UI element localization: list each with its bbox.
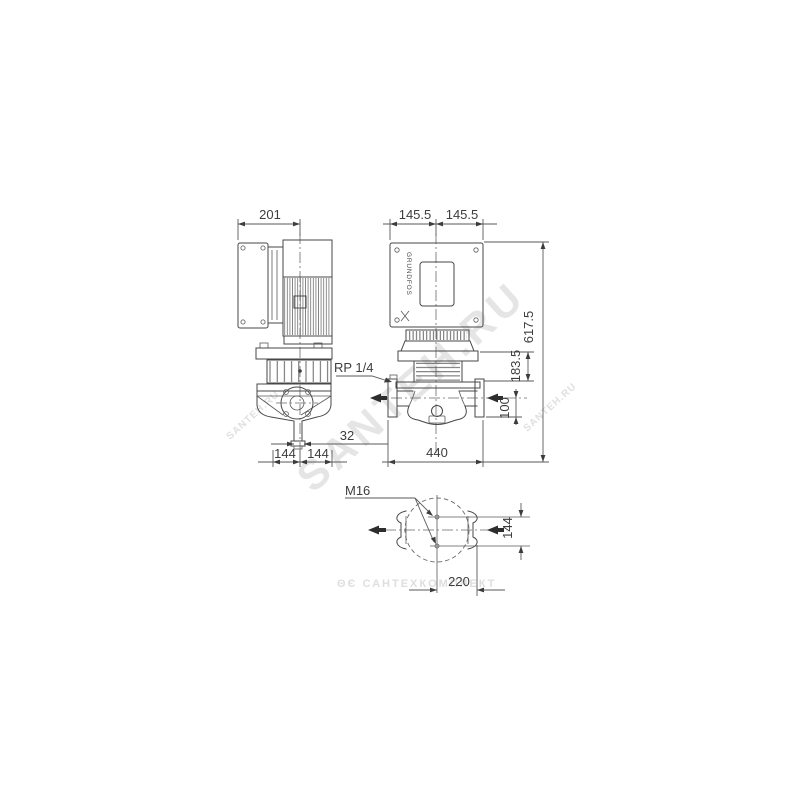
- motor-base: [284, 336, 332, 344]
- terminal-box-panel: [268, 247, 283, 323]
- screw-icon: [261, 320, 265, 324]
- dim-201: 201: [259, 207, 281, 222]
- fan-cover-side: [283, 240, 332, 277]
- brand-label: GRUNDFOS: [405, 252, 412, 296]
- plan-flow-arrow-left-icon: [368, 526, 379, 535]
- dim-220: 220: [448, 574, 470, 589]
- dim-145-left: 145.5: [399, 207, 432, 222]
- screw-icon: [261, 246, 265, 250]
- dim-183: 183.5: [508, 350, 523, 383]
- dim-144-plan: 144: [500, 517, 515, 539]
- screw-icon: [474, 248, 478, 252]
- label-m16: M16: [345, 483, 370, 498]
- flange-bolt: [260, 343, 268, 348]
- motor-stool-flange: [256, 348, 332, 359]
- watermark-tile-left: SANTEH.RU: [225, 389, 282, 442]
- dim-144-left: 144: [274, 446, 296, 461]
- drain-boss-plug: [429, 416, 445, 423]
- motor-fins: [284, 278, 331, 335]
- seal-stack-lines: [416, 362, 460, 382]
- screw-icon: [241, 320, 245, 324]
- pump-dimension-drawing: SANTEH.RU SANTEH.RU SANTEH.RU ΘЄ САНТЕХК…: [0, 0, 800, 800]
- pump-dimension-drawing-page: SANTEH.RU SANTEH.RU SANTEH.RU ΘЄ САНТЕХК…: [0, 0, 800, 800]
- dim-32: 32: [340, 428, 354, 443]
- watermark-tile-right: SANTEH.RU: [522, 381, 579, 434]
- dim-145-right: 145.5: [446, 207, 479, 222]
- screw-icon: [241, 246, 245, 250]
- drain-boss: [432, 406, 443, 417]
- terminal-box-window: [420, 262, 454, 306]
- brand-logo-icon: [401, 311, 409, 321]
- shaft-dot: [298, 369, 302, 373]
- screw-icon: [395, 248, 399, 252]
- screw-icon: [395, 318, 399, 322]
- dim-617: 617.5: [521, 311, 536, 344]
- dim-440: 440: [426, 445, 448, 460]
- terminal-box-side: [238, 243, 268, 328]
- fan-grill: [408, 331, 467, 340]
- label-rp14: RP 1/4: [334, 360, 374, 375]
- plan-flow-arrow-right-icon: [487, 526, 498, 535]
- watermark-bottom: ΘЄ САНТЕХКОМПЛЕКТ: [337, 578, 497, 590]
- dim-100: 100: [497, 397, 512, 419]
- dim-144-right: 144: [307, 446, 329, 461]
